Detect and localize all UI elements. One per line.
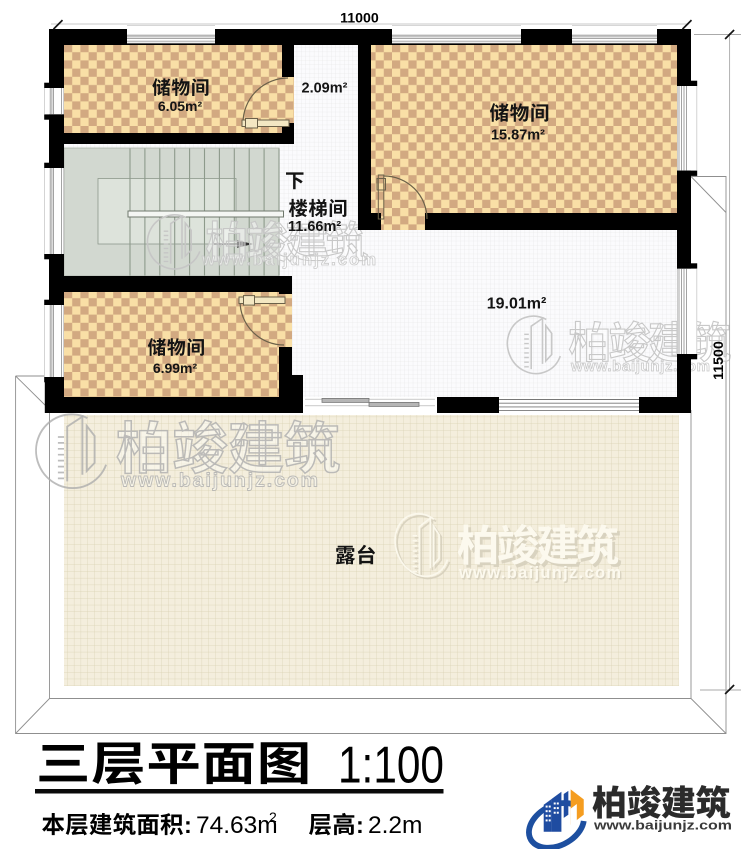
- svg-text:www.baijunjz.com: www.baijunjz.com: [593, 818, 732, 833]
- svg-text:www.baijunjz.com: www.baijunjz.com: [458, 564, 623, 582]
- svg-text:15.87m²: 15.87m²: [491, 128, 545, 144]
- svg-text:11.66m²: 11.66m²: [288, 219, 341, 235]
- svg-text::: :: [184, 812, 192, 838]
- svg-text:74.63m: 74.63m: [196, 812, 278, 839]
- svg-text:19.01m²: 19.01m²: [487, 296, 547, 313]
- svg-text:2.2m: 2.2m: [368, 812, 422, 839]
- svg-text:6.05m²: 6.05m²: [158, 98, 203, 114]
- svg-text:2: 2: [269, 809, 277, 825]
- svg-text:11500: 11500: [711, 341, 727, 380]
- svg-text:www.baijunjz.com: www.baijunjz.com: [120, 470, 320, 492]
- svg-text:2.09m²: 2.09m²: [302, 81, 348, 97]
- svg-text:11000: 11000: [340, 10, 379, 26]
- svg-text::: :: [356, 812, 364, 838]
- svg-text:www.baijunjz.com: www.baijunjz.com: [201, 251, 378, 269]
- svg-text:6.99m²: 6.99m²: [153, 360, 198, 376]
- svg-text:1:100: 1:100: [338, 737, 444, 795]
